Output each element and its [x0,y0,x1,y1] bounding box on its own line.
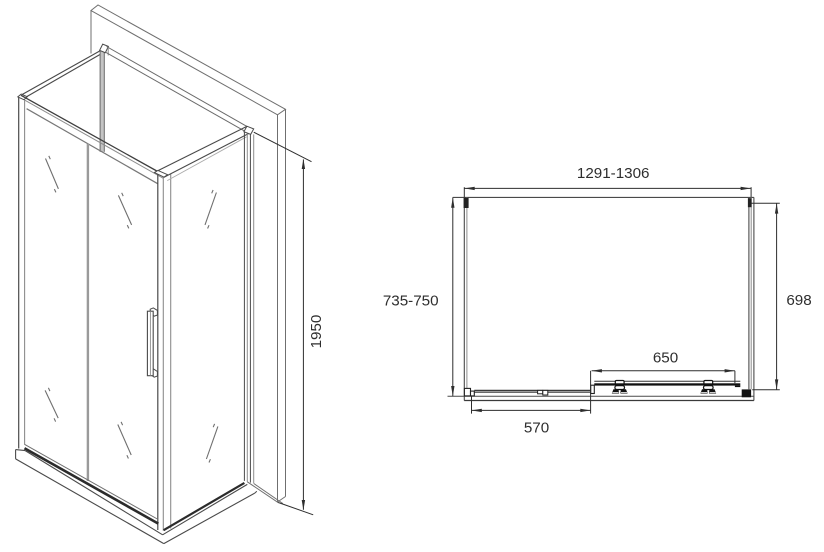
svg-text:570: 570 [524,420,549,437]
svg-text:1291-1306: 1291-1306 [577,165,650,182]
svg-text:698: 698 [786,292,811,309]
svg-text:650: 650 [653,350,678,367]
svg-text:1950: 1950 [308,315,325,349]
svg-text:735-750: 735-750 [383,292,439,309]
